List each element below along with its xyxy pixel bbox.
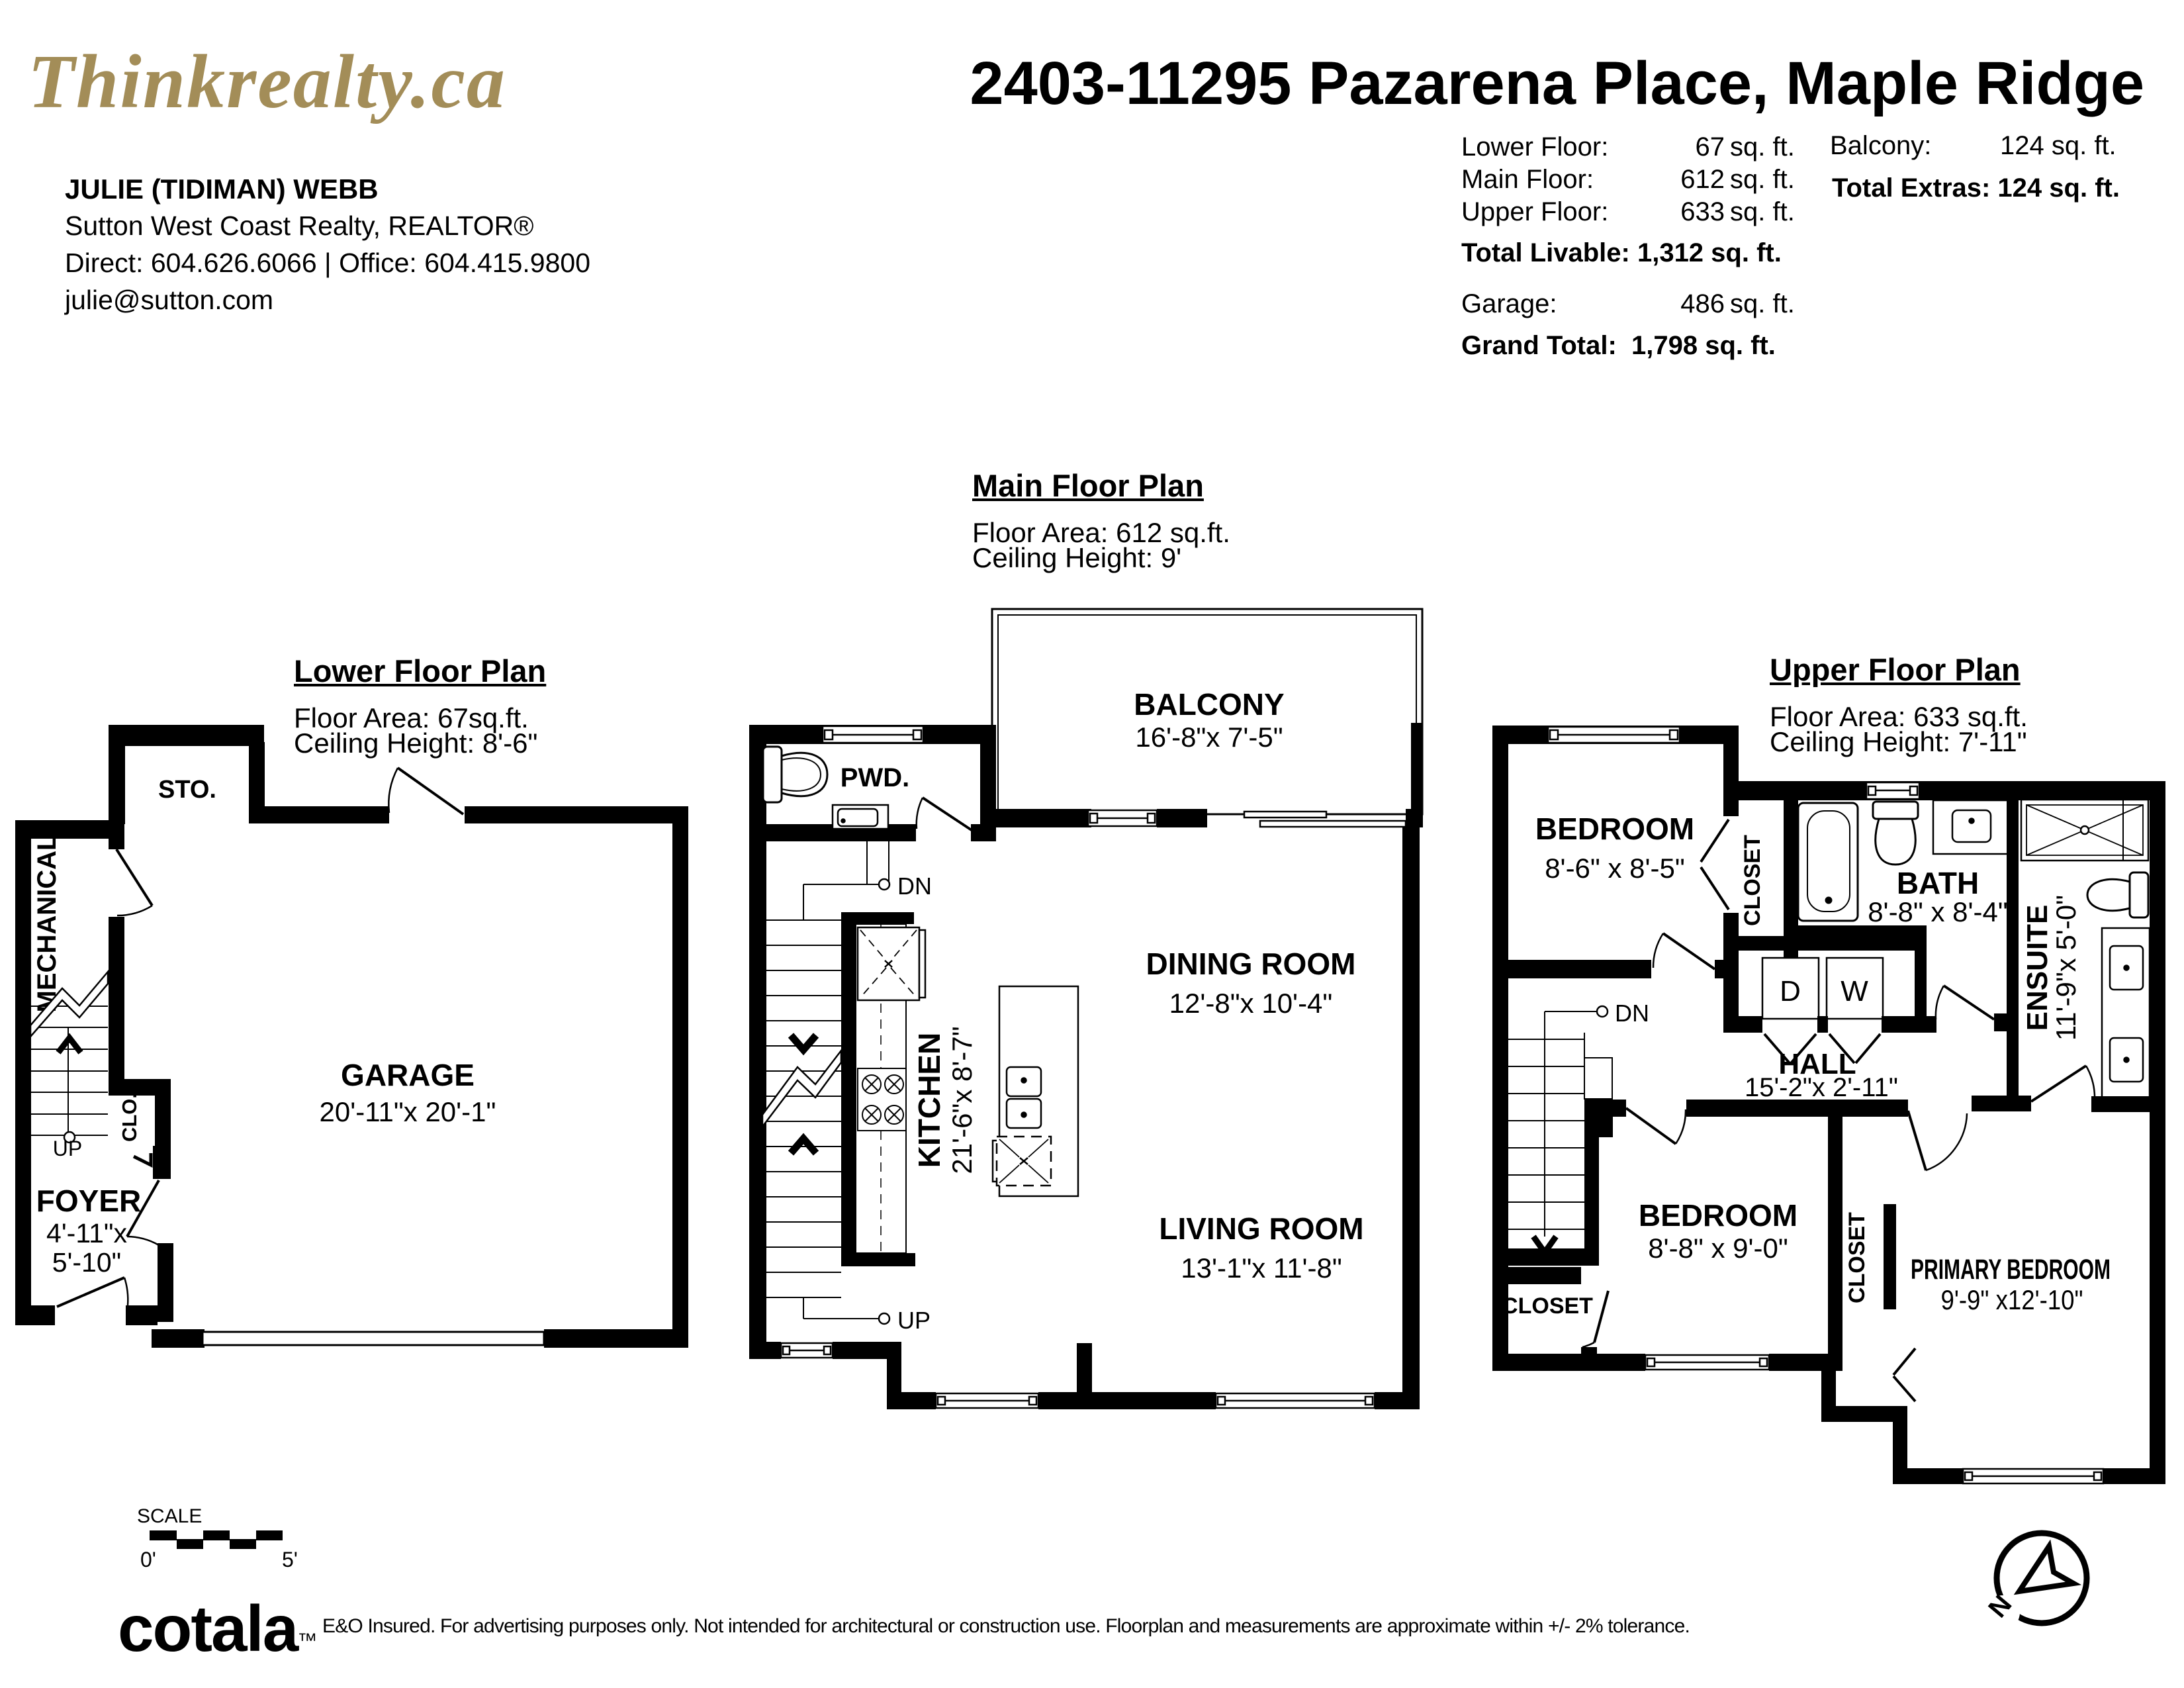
svg-text:D: D bbox=[1780, 975, 1801, 1008]
svg-text:UP: UP bbox=[897, 1307, 931, 1334]
svg-text:GARAGE: GARAGE bbox=[341, 1058, 475, 1092]
svg-text:CLOSET: CLOSET bbox=[1502, 1293, 1593, 1319]
svg-text:UP: UP bbox=[53, 1137, 82, 1160]
svg-text:STO.: STO. bbox=[158, 776, 216, 804]
svg-text:8'-8" x 9'-0": 8'-8" x 9'-0" bbox=[1648, 1233, 1788, 1264]
svg-text:11'-9"x 5'-0": 11'-9"x 5'-0" bbox=[2050, 895, 2081, 1041]
svg-text:5'-10": 5'-10" bbox=[52, 1247, 121, 1278]
svg-text:ENSUITE: ENSUITE bbox=[2021, 905, 2054, 1031]
svg-text:9'-9" x12'-10": 9'-9" x12'-10" bbox=[1941, 1284, 2083, 1315]
svg-text:LIVING ROOM: LIVING ROOM bbox=[1159, 1211, 1363, 1246]
svg-text:MECHANICAL: MECHANICAL bbox=[32, 835, 62, 1013]
svg-text:BALCONY: BALCONY bbox=[1134, 687, 1284, 722]
svg-text:PWD.: PWD. bbox=[841, 763, 909, 792]
svg-text:20'-11"x 20'-1": 20'-11"x 20'-1" bbox=[320, 1096, 496, 1127]
svg-text:BATH: BATH bbox=[1897, 866, 1979, 900]
svg-text:DINING ROOM: DINING ROOM bbox=[1146, 947, 1356, 981]
svg-text:BEDROOM: BEDROOM bbox=[1535, 812, 1694, 846]
svg-text:PRIMARY BEDROOM: PRIMARY BEDROOM bbox=[1911, 1254, 2111, 1286]
svg-text:12'-8"x 10'-4": 12'-8"x 10'-4" bbox=[1169, 988, 1333, 1019]
svg-text:21'-6"x 8'-7": 21'-6"x 8'-7" bbox=[946, 1026, 978, 1174]
svg-text:8'-6" x 8'-5": 8'-6" x 8'-5" bbox=[1545, 853, 1685, 884]
svg-text:8'-8" x 8'-4": 8'-8" x 8'-4" bbox=[1868, 896, 2008, 927]
svg-text:13'-1"x 11'-8": 13'-1"x 11'-8" bbox=[1181, 1252, 1342, 1284]
svg-text:DN: DN bbox=[897, 872, 932, 900]
svg-text:FOYER: FOYER bbox=[36, 1184, 141, 1218]
svg-text:15'-2"x 2'-11": 15'-2"x 2'-11" bbox=[1745, 1073, 1898, 1102]
svg-text:CLO.: CLO. bbox=[118, 1093, 141, 1142]
svg-text:W: W bbox=[1841, 975, 1868, 1008]
svg-text:DN: DN bbox=[1615, 1000, 1649, 1027]
svg-text:16'-8"x 7'-5": 16'-8"x 7'-5" bbox=[1135, 722, 1283, 753]
svg-text:CLOSET: CLOSET bbox=[1740, 835, 1765, 926]
svg-text:BEDROOM: BEDROOM bbox=[1639, 1198, 1797, 1233]
svg-text:KITCHEN: KITCHEN bbox=[912, 1033, 946, 1168]
svg-text:4'-11"x: 4'-11"x bbox=[46, 1218, 127, 1248]
svg-text:CLOSET: CLOSET bbox=[1844, 1212, 1870, 1303]
